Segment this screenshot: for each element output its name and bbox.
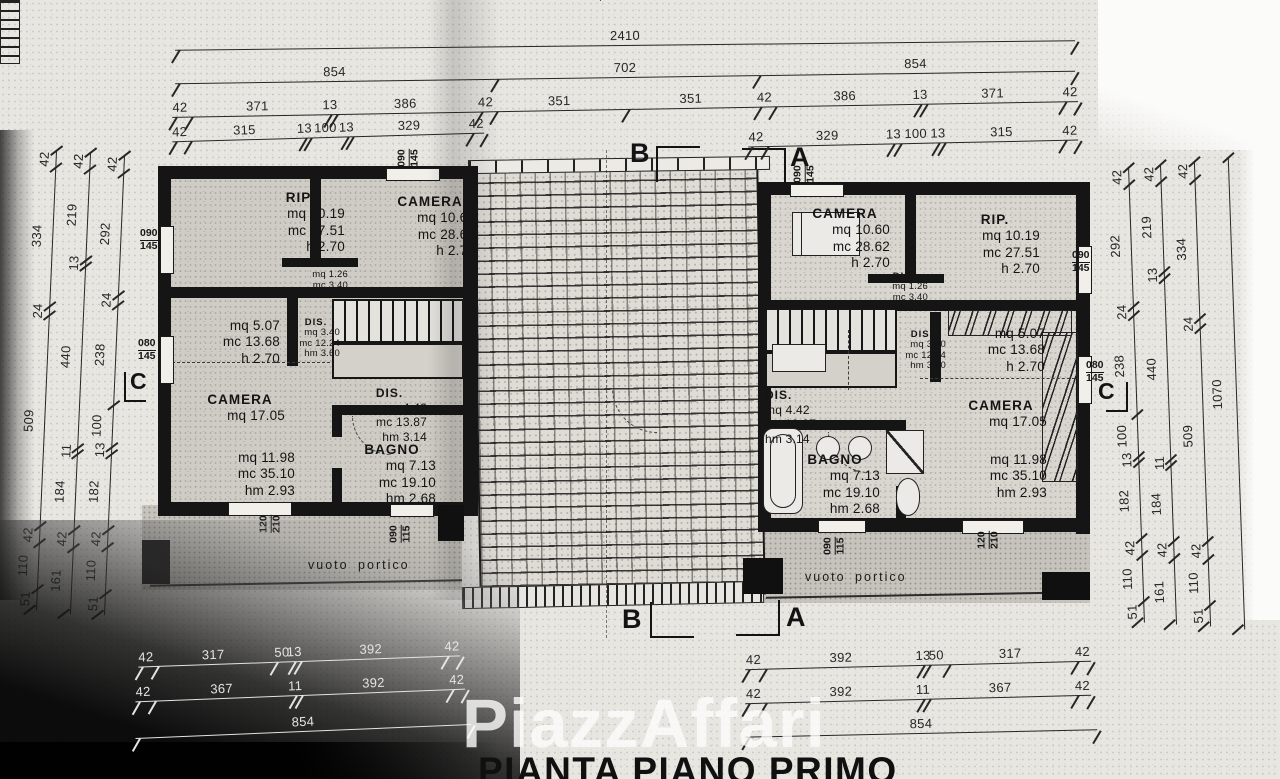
- dim-value: 392: [829, 684, 852, 700]
- room-label-bagno-left: BAGNOmq 7.13 mc 19.10hm 2.68: [348, 442, 436, 508]
- dim-value: 854: [323, 64, 346, 79]
- dim-segment: 110: [1190, 559, 1211, 606]
- dim-chain-top-left-detail: 42315131001332942: [172, 116, 484, 143]
- dim-value: 219: [64, 203, 80, 226]
- wall-segment: [758, 518, 1090, 532]
- pier-block: [142, 540, 170, 584]
- dim-value: 317: [202, 647, 225, 663]
- dim-segment: 42: [135, 683, 152, 703]
- ladder-symbol: [0, 0, 20, 64]
- dim-segment: 42: [1176, 162, 1196, 180]
- dim-value: 386: [833, 88, 856, 103]
- dim-value: 392: [362, 675, 385, 691]
- room-label-camera1-right: CAMERAmq 10.60 mc 28.62h 2.70: [800, 206, 890, 272]
- dim-value: 219: [1139, 216, 1155, 239]
- dim-segment: 42: [1110, 168, 1130, 186]
- room-label-rip-left: RIP.mq 10.19 mc 27.51h 2.70: [255, 190, 345, 256]
- dim-value: 42: [1062, 84, 1077, 99]
- room-label-dis1-right: DIS.mq 1.26 mc 3.40h 2.70: [880, 272, 928, 314]
- dim-segment: 351: [493, 91, 625, 112]
- room-label-507-left: mq 5.07mc 13.68h 2.70: [190, 318, 280, 367]
- scan-white-edge: [1238, 0, 1280, 620]
- dim-segment: 334: [31, 167, 56, 306]
- shower: [886, 430, 924, 474]
- dim-segment: 371: [188, 96, 327, 117]
- dim-segment: 42: [1074, 677, 1091, 696]
- dim-segment: 161: [1156, 558, 1177, 625]
- dim-chain-right-outer: 42334245094211051: [1176, 162, 1210, 627]
- dim-segment: 42: [477, 93, 493, 112]
- dim-chain-left-inner: 4229224238100131824211051: [86, 155, 124, 615]
- dim-segment: 42: [748, 128, 765, 147]
- dim-segment: 42: [71, 152, 91, 170]
- dim-segment: 392: [298, 671, 449, 696]
- dim-segment: 2410: [175, 22, 1075, 50]
- dim-value: 50: [929, 647, 944, 662]
- dim-segment: 386: [333, 94, 478, 116]
- dim-value: 42: [1109, 169, 1125, 185]
- dim-segment: 184: [56, 454, 78, 531]
- dim-value: 182: [86, 480, 102, 503]
- desk: [772, 344, 826, 372]
- dim-segment: 42: [1123, 538, 1143, 556]
- dim-segment: 42: [468, 115, 484, 134]
- wardrobe: [1042, 332, 1078, 482]
- dim-chain-right-mid: 42219134401118442161: [1142, 165, 1176, 625]
- section-line-b: [606, 150, 607, 638]
- dim-value: 854: [291, 714, 314, 730]
- dim-segment: 367: [926, 677, 1074, 700]
- window-size-label: 090115: [823, 537, 847, 555]
- dim-value: 110: [1186, 572, 1202, 594]
- dim-value: 854: [910, 716, 933, 731]
- portico-label-left: vuoto portico: [308, 558, 410, 572]
- dim-chain-854-702-854: 854702854: [175, 54, 1075, 85]
- dim-value: 329: [397, 117, 420, 133]
- dim-segment: 110: [1124, 556, 1145, 602]
- dim-value: 367: [210, 681, 233, 697]
- dim-segment: 42: [21, 525, 41, 543]
- dim-segment: 440: [1146, 279, 1171, 460]
- dashed-line: [920, 378, 1080, 379]
- dim-value: 42: [1188, 543, 1204, 559]
- dim-segment: 351: [625, 89, 757, 110]
- dim-segment: 371: [923, 83, 1062, 104]
- dim-value: 292: [1108, 235, 1124, 258]
- dim-value: 184: [1149, 492, 1165, 515]
- wall-segment: [332, 468, 342, 508]
- dim-segment: 509: [1182, 329, 1208, 542]
- pier-block: [438, 505, 464, 541]
- dim-value: 334: [1174, 238, 1190, 261]
- dim-segment: 42: [89, 529, 109, 547]
- dim-value: 42: [88, 531, 104, 547]
- dim-segment: 182: [1120, 463, 1142, 539]
- dim-value: 238: [92, 343, 108, 366]
- dim-segment: 42: [1062, 83, 1078, 102]
- dim-segment: 317: [946, 643, 1074, 665]
- dim-value: 42: [746, 652, 761, 667]
- dim-value: 100: [89, 414, 105, 437]
- left-portico: [142, 505, 462, 590]
- dim-value: 42: [1062, 123, 1077, 138]
- dim-value: 100: [1114, 425, 1130, 448]
- dim-chain-bottom-left-1: 42317501339242: [138, 638, 460, 667]
- dim-value: 1070: [1209, 379, 1225, 410]
- dim-value: 42: [172, 100, 187, 115]
- dim-value: 42: [1141, 166, 1157, 182]
- room-label-1198-left: mq 11.98mc 35.10hm 2.93: [200, 450, 295, 499]
- dim-segment: 317: [153, 644, 272, 667]
- room-label-dis3-right: DIS.mq 4.42 mc 13.87hm 3.14: [765, 388, 837, 447]
- dim-segment: 110: [19, 543, 40, 589]
- section-marker-a-bottom: A: [786, 606, 806, 637]
- dim-segment: 42: [172, 123, 188, 142]
- dim-value: 392: [829, 650, 852, 666]
- section-marker-b-top: B: [630, 142, 650, 173]
- dim-segment: 42: [756, 88, 772, 107]
- dim-segment: 219: [67, 169, 90, 260]
- window-sill: [790, 184, 844, 197]
- pier-block: [743, 558, 783, 594]
- dim-segment: 51: [86, 593, 106, 615]
- dim-segment: 42: [1142, 165, 1162, 183]
- dim-segment: 1070: [1210, 158, 1245, 630]
- dim-value: 367: [989, 680, 1012, 696]
- dim-segment: 854: [175, 61, 494, 84]
- dim-segment: 110: [87, 547, 108, 594]
- dim-value: 351: [548, 93, 571, 108]
- window-size-label: 090145: [1072, 250, 1090, 274]
- roof-tiles: [472, 165, 765, 600]
- floor-plan-sheet: RIP.mq 10.19 mc 27.51h 2.70 CAMERAmq 10.…: [0, 0, 1280, 779]
- section-bracket: [736, 600, 780, 636]
- dim-value: 182: [1117, 490, 1133, 513]
- dim-value: 351: [679, 91, 702, 106]
- dim-value: 334: [29, 225, 45, 248]
- section-marker-c-left: C: [130, 372, 147, 399]
- dim-value: 440: [1144, 358, 1160, 381]
- dim-value: 329: [816, 128, 839, 143]
- dim-value: 386: [394, 96, 417, 111]
- dim-value: 110: [83, 559, 99, 581]
- dim-value: 2410: [610, 28, 640, 43]
- dim-segment: 50: [926, 646, 947, 665]
- dim-value: 315: [990, 124, 1013, 139]
- room-label-dis2-left: DIS.mq 3.40 mc 12.24hm 3.60: [292, 318, 340, 360]
- room-label-camera2-left: CAMERAmq 17.05: [195, 392, 285, 425]
- room-label-bagno-right: BAGNOmq 7.13 mc 19.10hm 2.68: [790, 452, 880, 518]
- room-label-dis2-right: DIS.mq 3.40 mc 12.24hm 3.60: [898, 330, 946, 372]
- dim-segment: 238: [95, 305, 118, 406]
- dim-segment: 292: [1111, 185, 1134, 307]
- window-size-label: 090145: [397, 149, 421, 167]
- dim-segment: 854: [135, 706, 472, 739]
- dim-value: 110: [1120, 568, 1136, 590]
- section-marker-c-right: C: [1098, 382, 1115, 409]
- dim-segment: 42: [745, 651, 762, 670]
- dim-value: 42: [172, 124, 187, 139]
- dim-segment: 42: [1062, 122, 1079, 141]
- dim-value: 509: [21, 409, 37, 432]
- dim-chain-top-right-detail: 42329131001331542: [748, 123, 1078, 148]
- drawing-title: PIANTA PIANO PRIMO: [478, 750, 898, 779]
- dim-value: 42: [1075, 678, 1090, 693]
- dim-value: 42: [757, 89, 772, 104]
- dim-segment: 51: [1125, 601, 1145, 623]
- dim-segment: 219: [1143, 182, 1165, 273]
- dim-segment: 854: [756, 53, 1075, 76]
- window-sill: [160, 336, 174, 384]
- dim-segment: 42: [37, 150, 57, 168]
- room-label-dis3-left: DIS.mq 4.42 mc 13.87hm 3.14: [352, 386, 427, 445]
- window-size-label: 120210: [977, 531, 1001, 549]
- dim-segment: 182: [90, 453, 112, 530]
- dim-chain-left-outer: 42334245094211051: [18, 150, 56, 610]
- dim-chain-top-detail: 423711338642351351423861337142: [172, 84, 1078, 118]
- dim-segment: 51: [18, 588, 38, 610]
- dim-segment: 51: [1191, 605, 1211, 627]
- dim-value: 392: [359, 641, 382, 657]
- room-label-1198-right: mq 11.98mc 35.10hm 2.93: [952, 452, 1047, 501]
- room-label-camera2-right: CAMERAmq 17.05: [955, 398, 1047, 431]
- dim-segment: 702: [494, 57, 756, 80]
- dim-chain-left-mid: 42219134401118442161: [52, 152, 90, 614]
- dim-value: 51: [17, 591, 33, 607]
- section-bracket: [650, 602, 694, 638]
- dim-value: 854: [904, 56, 927, 71]
- dim-value: 51: [1124, 605, 1140, 621]
- dim-segment: 184: [1152, 466, 1174, 542]
- dim-value: 42: [1154, 542, 1170, 558]
- scan-white-corner: [1098, 0, 1280, 150]
- window-size-label: 090115: [389, 525, 413, 543]
- dim-chain-bottom-right-1: 42392135031742: [745, 644, 1091, 670]
- dim-segment: 42: [105, 155, 125, 173]
- dim-segment: 509: [22, 315, 50, 526]
- dim-segment: 315: [187, 120, 302, 142]
- dim-segment: 161: [52, 547, 74, 614]
- dim-segment: 42: [55, 530, 75, 548]
- dim-segment: 42: [138, 648, 154, 668]
- dim-segment: 42: [1155, 541, 1175, 559]
- dim-segment: 392: [762, 647, 920, 670]
- dim-value: 292: [97, 222, 113, 245]
- window-size-label: 080145: [138, 338, 156, 362]
- dim-chain-total-2410: 2410: [175, 23, 1075, 50]
- dim-value: 317: [999, 645, 1022, 661]
- dim-value: 702: [614, 60, 637, 75]
- dim-value: 42: [104, 156, 120, 172]
- dim-chain-bottom-left-3: 854: [135, 707, 471, 739]
- dim-value: 51: [85, 596, 101, 612]
- dim-value: 42: [20, 527, 36, 543]
- scan-bottom-shadow: [0, 742, 500, 779]
- window-size-label: 120210: [259, 515, 283, 533]
- dim-segment: 440: [59, 266, 86, 448]
- dim-segment: 42: [172, 99, 188, 118]
- room-label-507-right: mq 5.07mc 13.68h 2.70: [955, 326, 1045, 375]
- dim-value: 42: [478, 94, 493, 109]
- dim-value: 42: [1175, 163, 1191, 179]
- dim-value: 42: [36, 151, 52, 167]
- room-label-camera1-left: CAMERAmq 10.60 mc 28.62h 2.70: [385, 194, 475, 260]
- dim-value: 371: [981, 85, 1004, 100]
- dim-segment: 100: [1119, 415, 1139, 457]
- dim-value: 440: [58, 345, 74, 368]
- dim-segment: 329: [764, 125, 891, 147]
- pier-block: [1042, 572, 1090, 600]
- dim-value: 42: [54, 531, 70, 547]
- dim-segment: 42: [1189, 542, 1209, 560]
- dim-value: 315: [233, 122, 256, 138]
- dim-value: 100: [314, 120, 337, 136]
- room-label-rip-right: RIP.mq 10.19 mc 27.51h 2.70: [950, 212, 1040, 278]
- staircase: [332, 299, 464, 343]
- dim-segment: 367: [151, 677, 293, 701]
- window-sill: [386, 168, 440, 181]
- dim-value: 42: [138, 649, 154, 665]
- section-marker-a-top: A: [790, 146, 810, 177]
- dim-value: 42: [469, 116, 484, 131]
- room-label-dis1-left: DIS.mq 1.26 mc 3.40h 2.70: [300, 260, 348, 302]
- dim-segment: 292: [100, 172, 124, 295]
- dim-segment: 315: [941, 122, 1062, 144]
- window-sill: [160, 226, 174, 274]
- dim-segment: 100: [93, 404, 114, 447]
- dim-value: 371: [246, 98, 269, 113]
- section-bracket: [656, 146, 700, 182]
- dim-value: 42: [1075, 644, 1090, 659]
- dim-value: 110: [15, 555, 31, 577]
- dim-chain-bottom-left-2: 423671139242: [135, 672, 465, 703]
- dim-segment: 386: [772, 86, 917, 108]
- dim-value: 42: [444, 638, 460, 654]
- dim-segment: 392: [297, 638, 445, 662]
- dim-value: 42: [70, 153, 86, 169]
- dim-value: 161: [48, 569, 64, 592]
- dim-value: 509: [1180, 424, 1196, 447]
- dim-chain-right-total-1070: 1070: [1210, 158, 1244, 630]
- window-size-label: 090145: [140, 228, 158, 252]
- door-swing-arc: [600, 0, 601, 1]
- dim-value: 161: [1152, 581, 1168, 604]
- dim-value: 238: [1112, 355, 1128, 378]
- dim-value: 42: [135, 684, 151, 700]
- dim-segment: 42: [444, 637, 460, 657]
- dim-segment: 334: [1177, 179, 1201, 319]
- portico-label-right: vuoto portico: [805, 570, 907, 584]
- dim-value: 42: [748, 129, 763, 144]
- dim-value: 42: [1122, 540, 1138, 556]
- dim-segment: 238: [1115, 316, 1137, 415]
- dim-segment: 42: [1074, 643, 1091, 662]
- dim-value: 184: [52, 480, 68, 503]
- toilet: [896, 478, 920, 516]
- wall-segment: [332, 405, 342, 437]
- stair-landing: [332, 343, 464, 379]
- dim-value: 51: [1190, 608, 1206, 624]
- wall-segment: [905, 188, 916, 278]
- section-marker-b-bottom: B: [622, 608, 642, 639]
- dim-segment: 100: [896, 125, 935, 145]
- dashed-line: [848, 330, 849, 390]
- dim-value: 100: [904, 126, 927, 141]
- window-sill: [818, 520, 866, 533]
- dim-segment: 329: [349, 115, 469, 137]
